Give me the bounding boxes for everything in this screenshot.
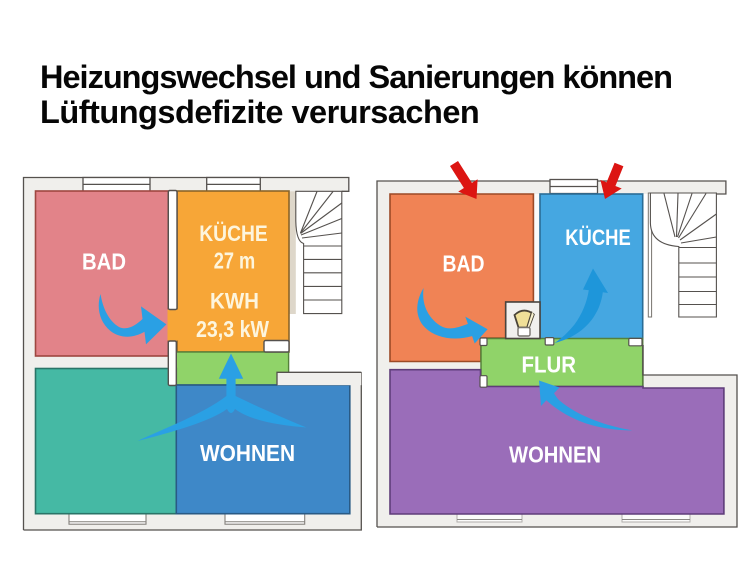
svg-text:KÜCHE: KÜCHE — [565, 225, 631, 250]
svg-text:WOHNEN: WOHNEN — [509, 442, 601, 468]
svg-text:FLUR: FLUR — [522, 352, 577, 378]
svg-text:WOHNEN: WOHNEN — [200, 440, 295, 466]
svg-text:BAD: BAD — [443, 251, 485, 277]
svg-text:KWH: KWH — [210, 289, 259, 314]
svg-text:23,3 kW: 23,3 kW — [196, 316, 269, 342]
svg-text:BAD: BAD — [82, 249, 126, 275]
svg-text:27 m: 27 m — [214, 248, 256, 274]
svg-text:Lüftungsdefizite verursachen: Lüftungsdefizite verursachen — [40, 94, 479, 130]
svg-text:KÜCHE: KÜCHE — [199, 221, 268, 246]
svg-text:Heizungswechsel und Sanierunge: Heizungswechsel und Sanierungen können — [40, 59, 672, 95]
